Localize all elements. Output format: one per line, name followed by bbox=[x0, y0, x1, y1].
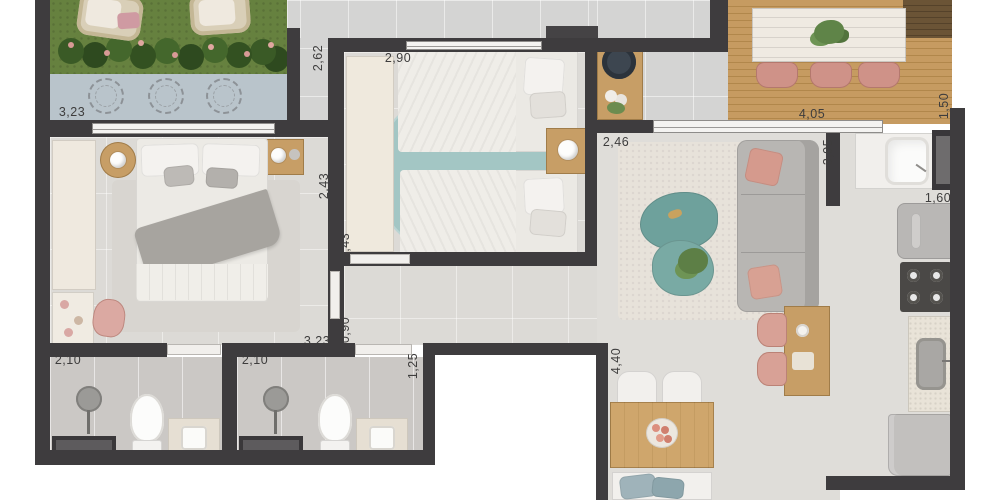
pink-towel bbox=[117, 12, 140, 29]
vanity-sink bbox=[181, 426, 207, 450]
nightstand-left bbox=[100, 142, 136, 178]
dining-bench bbox=[612, 472, 712, 500]
table-decor bbox=[667, 208, 683, 220]
wall-outer-left bbox=[35, 0, 50, 465]
cutout-center bbox=[435, 355, 596, 500]
wall-living-top-stub bbox=[597, 120, 655, 133]
lamp bbox=[110, 152, 126, 168]
lounge-cushion bbox=[198, 0, 236, 26]
niche-inner bbox=[936, 136, 950, 184]
sofa-pillow-salmon bbox=[744, 147, 784, 187]
shower-head bbox=[263, 386, 289, 412]
bed-pillow bbox=[529, 91, 567, 119]
bedroom1-window bbox=[92, 123, 275, 134]
nightstand-right bbox=[266, 139, 304, 175]
hedge-flowers bbox=[68, 42, 74, 48]
balcony-sliding-door bbox=[653, 120, 883, 133]
cutout-bottom-right bbox=[840, 490, 1000, 500]
accent-pillow bbox=[163, 164, 195, 187]
shower-stem bbox=[87, 410, 90, 434]
laundry-tub bbox=[885, 137, 929, 185]
desk-chair bbox=[757, 313, 787, 347]
dining-table bbox=[610, 402, 714, 468]
burner bbox=[907, 291, 920, 304]
sofa-pillow-salmon bbox=[747, 264, 784, 301]
small-plant bbox=[607, 102, 625, 114]
shelf-decor bbox=[60, 300, 69, 309]
bedroom1-door bbox=[330, 271, 340, 319]
balcony-planter bbox=[903, 0, 952, 38]
wall-bath-divider bbox=[222, 343, 237, 453]
wall-balcony-left bbox=[710, 0, 728, 40]
decor-vases bbox=[605, 90, 617, 102]
desk-tray bbox=[792, 352, 814, 370]
vanity-sink bbox=[369, 426, 395, 450]
wall-living-kitchen bbox=[826, 126, 840, 206]
burner bbox=[930, 291, 943, 304]
entry-door-leaf bbox=[546, 26, 598, 38]
garden-lounge-chair bbox=[189, 0, 252, 36]
faucet bbox=[916, 164, 927, 173]
sofa-seam bbox=[741, 194, 805, 195]
washing-machine bbox=[897, 203, 953, 259]
bedroom2-window bbox=[406, 41, 542, 50]
toilet bbox=[130, 394, 164, 442]
wall-bottom-right bbox=[826, 476, 965, 490]
tray bbox=[289, 149, 300, 160]
paving-dashed-circle bbox=[88, 78, 124, 114]
fruit bbox=[652, 424, 660, 432]
washer-door bbox=[911, 213, 921, 249]
paving-dashed-circle bbox=[206, 78, 242, 114]
refrigerator bbox=[888, 414, 952, 476]
garden-hedge bbox=[52, 32, 287, 74]
bedroom2-nightstand bbox=[546, 128, 590, 174]
laundry-counter bbox=[855, 133, 933, 189]
bedroom1-shelf bbox=[52, 292, 94, 348]
bedroom1-wardrobe bbox=[52, 140, 96, 290]
lamp bbox=[558, 140, 578, 160]
bar-stool bbox=[810, 62, 852, 88]
desk-chair bbox=[757, 352, 787, 386]
wall-cutout-right bbox=[596, 343, 608, 500]
burner bbox=[907, 269, 920, 282]
table-plant bbox=[814, 20, 844, 44]
fruit-bowl bbox=[646, 418, 678, 448]
lamp bbox=[271, 148, 286, 163]
wall-cutout-left bbox=[423, 343, 435, 465]
bedroom2-bed2 bbox=[400, 170, 578, 262]
bedroom2-wardrobe bbox=[346, 56, 394, 252]
wall-bath2-top bbox=[237, 343, 355, 357]
quilted-bed-foot bbox=[136, 264, 268, 300]
duvet bbox=[398, 48, 516, 152]
bar-stool bbox=[756, 62, 798, 88]
shower-stem bbox=[274, 410, 277, 434]
paving-dashed-circle bbox=[148, 78, 184, 114]
bed-pillow bbox=[529, 208, 567, 237]
desk bbox=[784, 306, 830, 396]
wall-bedroom2-right bbox=[585, 45, 597, 260]
bedroom1-bed bbox=[136, 138, 268, 302]
burner bbox=[930, 269, 943, 282]
kitchen-sink-counter bbox=[908, 316, 953, 412]
sofa-seam bbox=[741, 252, 805, 253]
bath2-door bbox=[355, 344, 412, 355]
shower-head bbox=[76, 386, 102, 412]
bar-stool bbox=[858, 62, 900, 88]
plant bbox=[678, 248, 708, 274]
floorplan-canvas: 3,232,622,902,464,051,503,952,432,431,60… bbox=[0, 0, 1000, 500]
toilet bbox=[318, 394, 352, 442]
balcony-bar-table bbox=[752, 8, 906, 62]
bath1-door bbox=[167, 344, 221, 355]
wall-garden-right bbox=[287, 28, 300, 124]
bench-pillow bbox=[651, 476, 685, 499]
sofa bbox=[737, 140, 819, 312]
accent-pillow bbox=[205, 167, 238, 189]
bedroom2-door bbox=[350, 254, 410, 264]
coffee-table-small bbox=[652, 240, 714, 296]
duvet bbox=[400, 170, 516, 262]
desk-decor-candle bbox=[796, 324, 809, 337]
wall-bath1-top bbox=[35, 343, 167, 357]
hall-floor bbox=[344, 262, 598, 345]
kitchen-sink bbox=[916, 338, 946, 390]
wall-outer-right bbox=[950, 108, 965, 490]
wall-cutout-top bbox=[423, 343, 608, 355]
stove-cooktop bbox=[900, 262, 952, 312]
